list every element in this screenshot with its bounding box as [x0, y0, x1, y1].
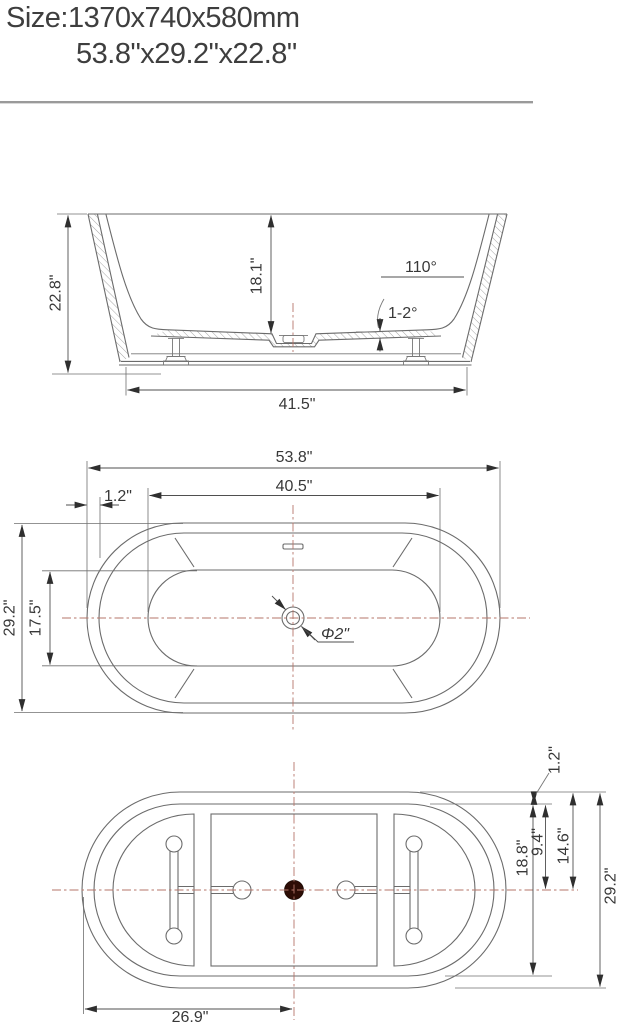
right-bracket-bottom-foot — [406, 928, 422, 944]
drain-flange-body — [283, 335, 304, 342]
dim-label-floor-slope: 1-2° — [388, 305, 418, 322]
slope-arc — [378, 299, 384, 328]
right-outer-wall — [471, 214, 507, 362]
right-bracket-top-foot — [406, 836, 422, 852]
dim-label-drain-diameter: Φ2" — [321, 626, 350, 643]
dim-label-overall-width: 29.2" — [2, 600, 19, 637]
right-inner-wall — [463, 215, 498, 358]
left-bracket-bottom-foot — [166, 928, 182, 944]
tub-section-outline — [88, 214, 507, 365]
dim-label-half-length: 26.9" — [172, 1009, 209, 1024]
right-wall-hatch — [463, 214, 508, 362]
spec-sheet: Size:1370x740x580mm 53.8"x29.2"x22.8" — [0, 0, 623, 1024]
right-foot — [404, 338, 429, 365]
dim-label-bottom-half-basin: 9.4" — [530, 828, 547, 856]
dim-label-rim-width: 1.2" — [104, 488, 132, 505]
dim-label-bottom-rim-width: 1.2" — [547, 746, 564, 774]
left-bracket-top-foot — [166, 836, 182, 852]
dim-label-overall-height: 22.8" — [48, 275, 65, 312]
left-inner-wall — [98, 215, 130, 358]
technical-drawing: 22.8" 18.1" 110° 1-2° 41.5" — [0, 0, 623, 1024]
tub-wall-hatching — [88, 214, 507, 362]
dim-label-bottom-half-overall: 14.6" — [556, 828, 573, 865]
dim-label-base-width: 41.5" — [279, 396, 316, 413]
left-outer-wall — [88, 214, 120, 362]
left-foot-pad — [166, 357, 187, 362]
dim-label-overall-length: 53.8" — [276, 449, 313, 466]
bottom-centerlines — [52, 762, 578, 1020]
dim-label-inner-depth: 18.1" — [249, 258, 266, 295]
dim-label-basin-length: 40.5" — [276, 478, 313, 495]
floor-hatch — [151, 330, 441, 347]
top-plan-view: 53.8" 40.5" 1.2" 29.2" 17.5" — [2, 449, 531, 730]
side-elevation-view: 22.8" 18.1" 110° 1-2° 41.5" — [48, 214, 508, 413]
right-foot-pad — [406, 357, 427, 362]
plan-dimensions: 53.8" 40.5" 1.2" 29.2" 17.5" — [2, 449, 501, 713]
drain-arrow-upper — [272, 596, 286, 610]
left-wall-hatch — [88, 214, 129, 362]
dim-label-bottom-overall-width: 29.2" — [603, 868, 620, 905]
left-foot — [164, 338, 189, 365]
bottom-rim-leader — [536, 773, 549, 794]
dim-label-basin-width: 17.5" — [28, 600, 45, 637]
bottom-view: 1.2" 18.8" 9.4" 14.6" 29.2" 26.9" — [52, 746, 620, 1024]
dim-label-wall-angle: 110° — [405, 259, 437, 276]
